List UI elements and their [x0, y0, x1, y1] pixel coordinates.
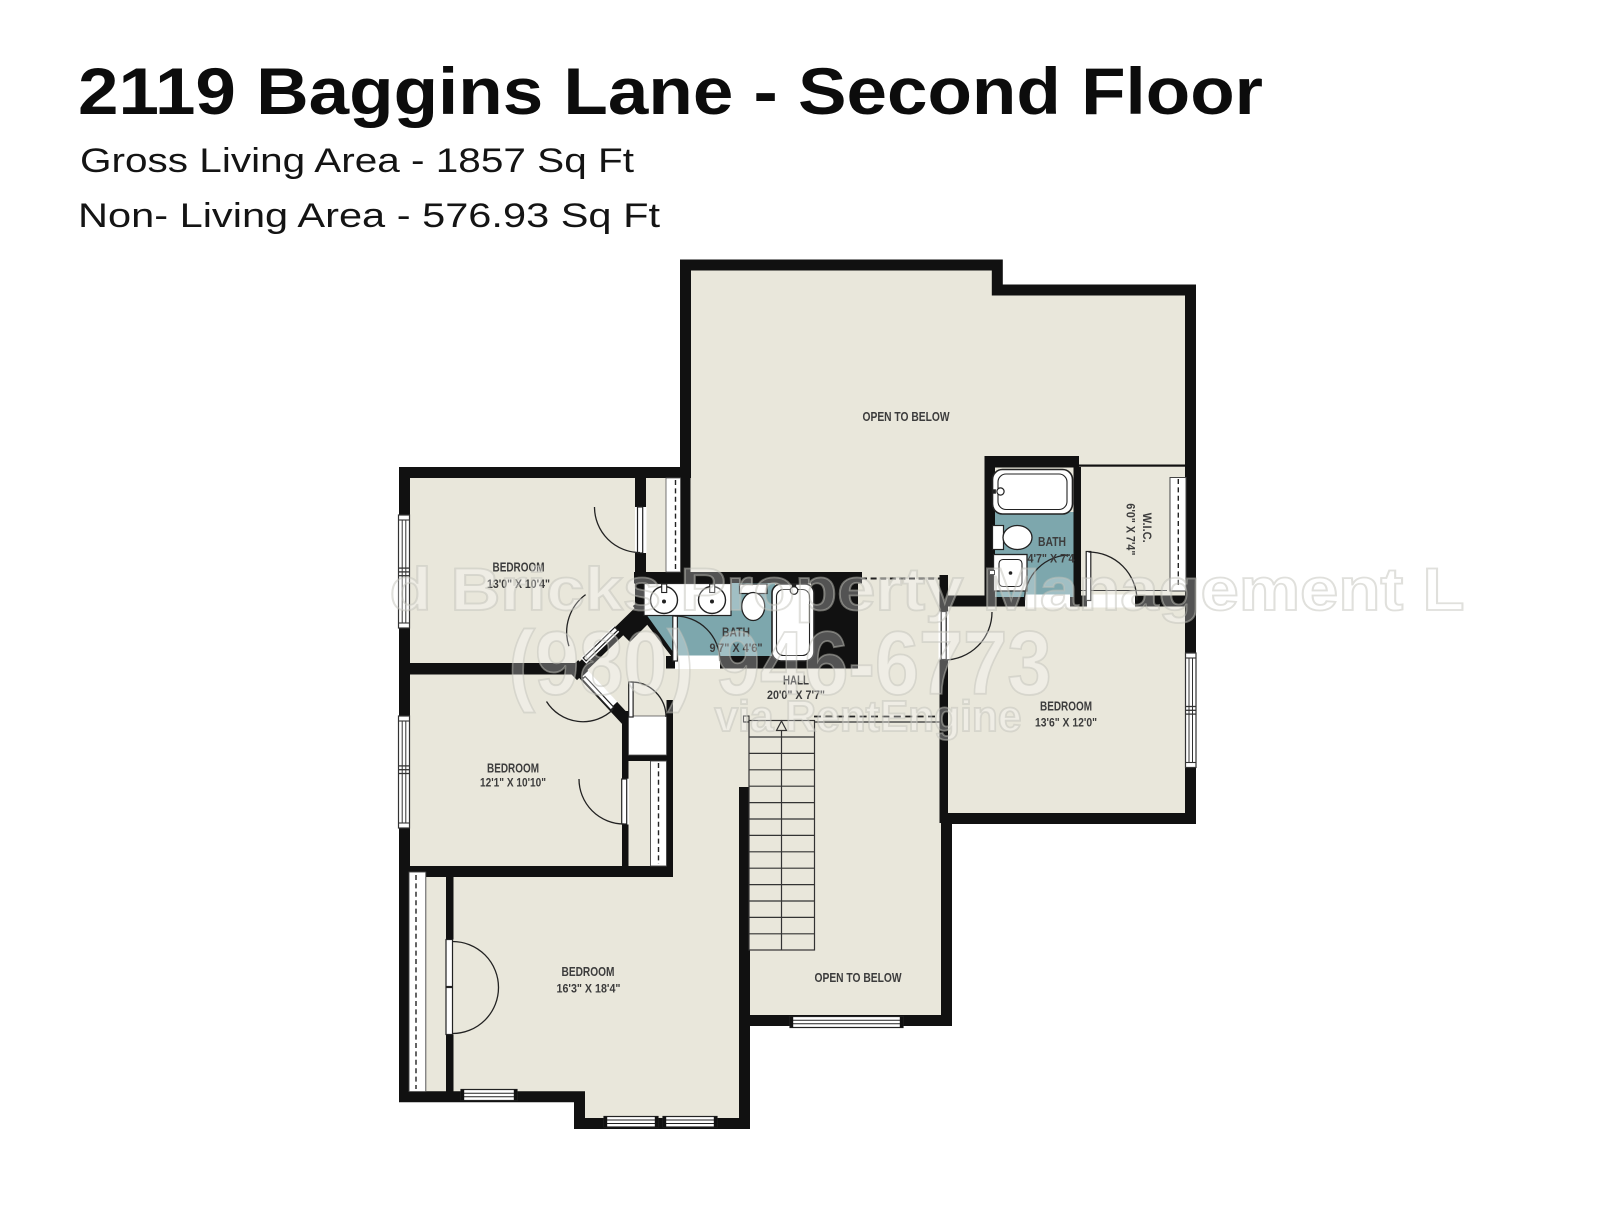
svg-text:16'3" X 18'4": 16'3" X 18'4"	[557, 982, 621, 996]
svg-text:OPEN TO BELOW: OPEN TO BELOW	[815, 971, 902, 985]
svg-text:Gross Living Area - 1857 Sq Ft: Gross Living Area - 1857 Sq Ft	[80, 142, 635, 180]
svg-text:Non- Living Area - 576.93 Sq F: Non- Living Area - 576.93 Sq Ft	[78, 197, 661, 235]
svg-text:via RentEngine: via RentEngine	[715, 692, 1022, 741]
svg-text:OPEN TO BELOW: OPEN TO BELOW	[863, 410, 950, 424]
svg-text:12'1" X 10'10": 12'1" X 10'10"	[480, 776, 546, 790]
svg-text:13'6" X 12'0": 13'6" X 12'0"	[1035, 716, 1097, 730]
svg-text:BEDROOM: BEDROOM	[562, 965, 615, 979]
svg-text:W.I.C.: W.I.C.	[1140, 513, 1154, 543]
svg-text:BEDROOM: BEDROOM	[487, 762, 539, 776]
svg-text:d Bricks Property Management L: d Bricks Property Management L	[390, 556, 1465, 623]
svg-text:6'0" X 7'4": 6'0" X 7'4"	[1124, 503, 1136, 555]
svg-text:BATH: BATH	[1038, 535, 1066, 549]
svg-text:2119 Baggins Lane - Second Flo: 2119 Baggins Lane - Second Floor	[78, 54, 1263, 128]
